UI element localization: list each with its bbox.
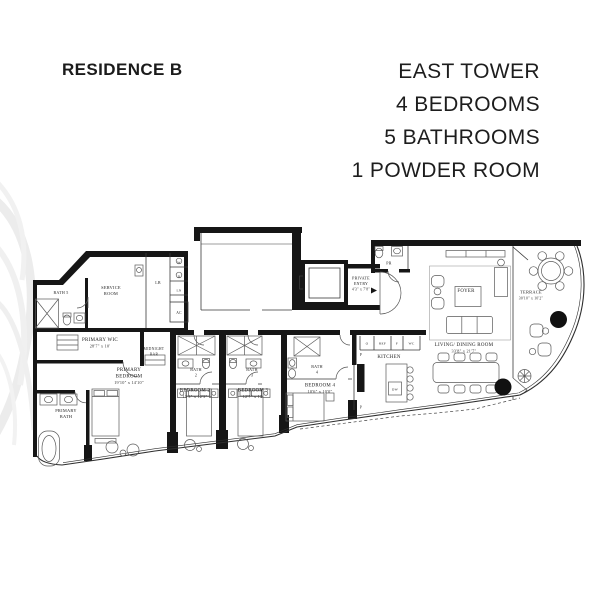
dishwasher-label: DW xyxy=(392,388,399,392)
partition-walls xyxy=(146,233,528,410)
shower-icon xyxy=(36,299,59,328)
powder-room-label: PR xyxy=(386,261,391,266)
living-dining-label: LIVING/ DINING ROOM xyxy=(435,343,494,348)
primary-bath-label: PRIMARY xyxy=(55,408,77,413)
vanity-sink-icon xyxy=(60,394,77,405)
console-table-icon xyxy=(446,251,505,258)
service-room-label: SERVICE xyxy=(101,285,121,290)
outdoor-lounge-icon xyxy=(529,324,551,356)
bath4-label: 4 xyxy=(316,370,318,375)
toilet-icon xyxy=(375,247,383,258)
floorplan-svg: BATH 5 SERVICE ROOM LB W D LN AC PRIMARY… xyxy=(0,0,600,600)
private-entry-label: PRIVATE xyxy=(352,276,370,281)
plant-icon xyxy=(518,370,531,383)
toilet-icon xyxy=(229,359,236,369)
private-entry-dim: 4'3" x 7'8" xyxy=(352,288,370,292)
wic-dresser-icon xyxy=(57,335,78,350)
bath5-label: BATH 5 xyxy=(54,290,69,295)
pantry-label: P xyxy=(360,406,362,410)
toilet-icon xyxy=(63,313,71,325)
bedroom4-label: BEDROOM 4 xyxy=(305,384,336,389)
bedroom2-label: BEDROOM 2 xyxy=(180,389,211,394)
palm-watermark xyxy=(0,180,34,445)
living-dining-dim: 33'8" x 21'7" xyxy=(452,349,477,354)
bedroom2-dim: 13'3" x 12'3" xyxy=(183,394,208,399)
ac-label: AC xyxy=(176,311,182,315)
bedroom4-dim: 10'6" x 10'0" xyxy=(308,389,333,394)
sink-icon xyxy=(74,313,85,323)
service-room-label: ROOM xyxy=(104,291,118,296)
freezer-label: F xyxy=(396,342,398,346)
primary-bedroom-dim: 19'10" x 14'10" xyxy=(114,380,144,385)
oven-label: O xyxy=(366,342,369,346)
tv-console-icon xyxy=(495,259,508,296)
toilet-icon xyxy=(202,359,209,369)
armchair-icon xyxy=(432,276,445,310)
bedroom3-label: BEDROOM 3 xyxy=(238,389,269,394)
linen-label: LN xyxy=(176,289,181,293)
shower-icon xyxy=(294,337,320,356)
elevator xyxy=(300,262,347,304)
water-heater-icon xyxy=(135,265,143,276)
pantry-label: P xyxy=(360,353,362,357)
outdoor-table-icon xyxy=(529,252,573,291)
dining-chair-icon xyxy=(438,353,497,361)
primary-wic-dim: 28'7" x 10' xyxy=(90,344,111,349)
primary-wic-label: PRIMARY WIC xyxy=(82,338,118,343)
kitchen-island-icon xyxy=(386,364,407,402)
washer-label: W xyxy=(177,261,181,265)
sink-icon xyxy=(392,247,403,257)
terrace-label: TERRACE xyxy=(520,290,542,295)
primary-bedroom-label: PRIMARY xyxy=(117,368,141,373)
bed-icon xyxy=(286,393,334,421)
kitchen-label: KITCHEN xyxy=(377,355,400,360)
primary-bath-label: BATH xyxy=(60,414,73,419)
bar-cabinet-icon xyxy=(145,355,165,365)
bath4-label: BATH xyxy=(311,364,322,369)
nightstand-icon xyxy=(229,389,238,398)
private-entry-label: ENTRY xyxy=(354,281,368,286)
terrace-dim: 30'10" x 10'2" xyxy=(519,297,544,301)
vanity-sink-icon xyxy=(40,394,57,405)
entry-arrow-icon xyxy=(371,288,377,294)
stool-icon xyxy=(407,367,413,400)
property-line-dashed xyxy=(300,398,520,429)
column xyxy=(495,311,568,396)
lb-label: LB xyxy=(155,280,161,285)
bath3-label: 3 xyxy=(251,373,253,378)
fridge-label: REF xyxy=(379,342,386,346)
midnight-bar-label: BAR xyxy=(150,353,159,357)
bath2-label: BATH xyxy=(190,367,201,372)
foyer-label: FOYER xyxy=(457,289,475,294)
floorplan-page: RESIDENCE B EAST TOWER 4 BEDROOMS 5 BATH… xyxy=(0,0,600,600)
wine-cooler-label: WC xyxy=(409,342,415,346)
closet-icon xyxy=(227,336,262,355)
dining-table-icon xyxy=(433,363,499,383)
rug xyxy=(430,266,511,340)
sink-icon xyxy=(288,358,297,368)
primary-bedroom-label: BEDROOM xyxy=(116,375,143,380)
dining-chair-icon xyxy=(438,385,497,393)
closet-icon xyxy=(178,336,215,355)
bath2-label: 2 xyxy=(195,373,197,378)
bed-icon xyxy=(92,389,119,443)
toilet-icon xyxy=(288,369,295,378)
dryer-label: D xyxy=(178,275,181,279)
sofa-icon xyxy=(447,317,493,334)
bedroom3-dim: 12'7" x 12' xyxy=(243,394,264,399)
bath3-label: BATH xyxy=(246,367,257,372)
midnight-bar-label: MIDNIGHT xyxy=(144,347,165,351)
